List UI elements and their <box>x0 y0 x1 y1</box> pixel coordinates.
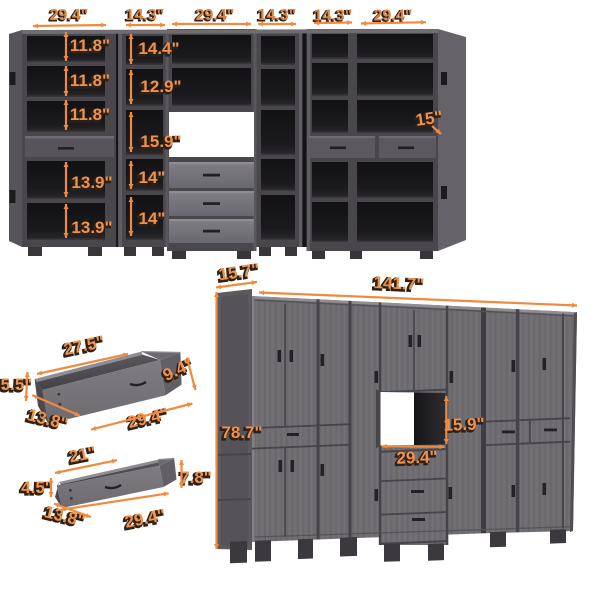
svg-text:29.4": 29.4" <box>196 7 235 24</box>
svg-text:12.9": 12.9" <box>140 77 181 96</box>
svg-text:29.4": 29.4" <box>50 7 89 24</box>
svg-text:11.8": 11.8" <box>70 105 110 124</box>
svg-text:14.3": 14.3" <box>126 7 165 24</box>
svg-text:15": 15" <box>414 107 443 130</box>
svg-text:4.5": 4.5" <box>21 478 53 497</box>
svg-text:11.8": 11.8" <box>70 36 110 55</box>
svg-text:14": 14" <box>139 209 166 228</box>
svg-text:14.3": 14.3" <box>258 7 297 24</box>
svg-text:15.9": 15.9" <box>443 414 485 434</box>
svg-text:14": 14" <box>139 168 166 187</box>
svg-text:15.9": 15.9" <box>140 132 181 151</box>
svg-text:7.8": 7.8" <box>180 468 212 487</box>
svg-text:29.4": 29.4" <box>396 447 438 467</box>
svg-text:14.4": 14.4" <box>138 39 179 58</box>
svg-text:78.7": 78.7" <box>221 423 262 442</box>
svg-text:13.9": 13.9" <box>71 173 112 192</box>
svg-text:141.7": 141.7" <box>373 273 424 294</box>
svg-text:13.9": 13.9" <box>71 218 112 237</box>
svg-text:11.8": 11.8" <box>70 71 110 90</box>
